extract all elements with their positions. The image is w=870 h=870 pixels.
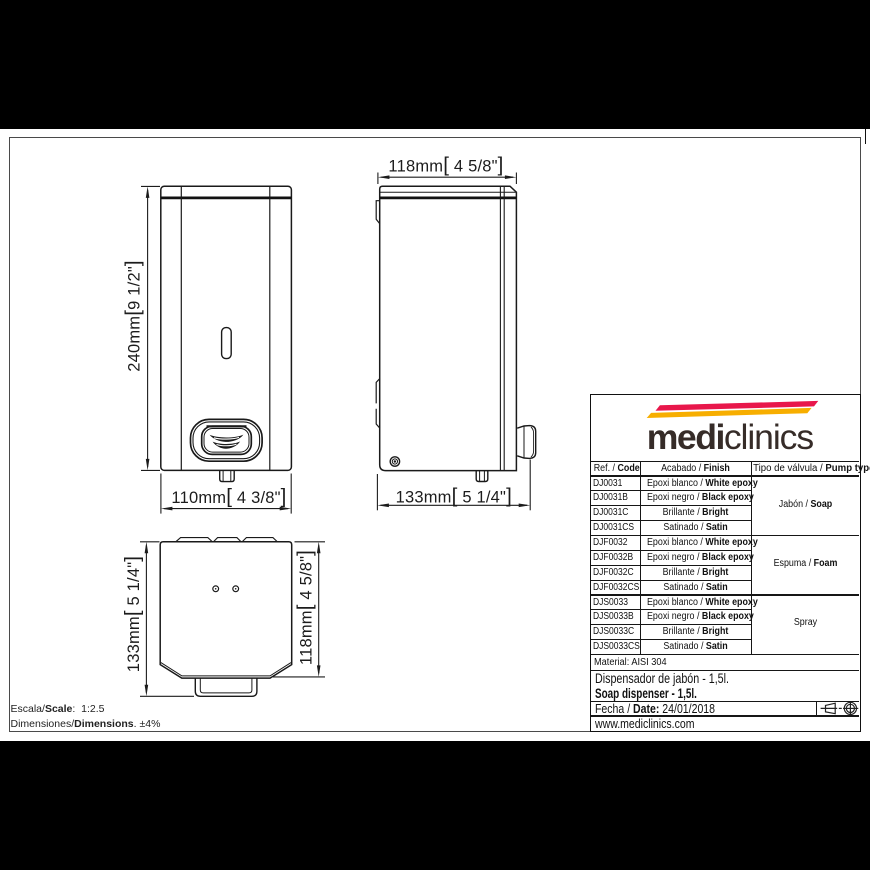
svg-text:133mm[ 5 1/4"]: 133mm[ 5 1/4"] bbox=[396, 485, 512, 508]
svg-text:110mm[ 4 3/8"]: 110mm[ 4 3/8"] bbox=[171, 485, 286, 508]
svg-text:240mm[9 1/2"]: 240mm[9 1/2"] bbox=[122, 260, 145, 372]
svg-text:133mm[ 5 1/4"]: 133mm[ 5 1/4"] bbox=[121, 556, 144, 672]
svg-text:118mm[ 4 5/8"]: 118mm[ 4 5/8"] bbox=[293, 550, 316, 665]
svg-text:118mm[ 4 5/8"]: 118mm[ 4 5/8"] bbox=[388, 154, 503, 177]
